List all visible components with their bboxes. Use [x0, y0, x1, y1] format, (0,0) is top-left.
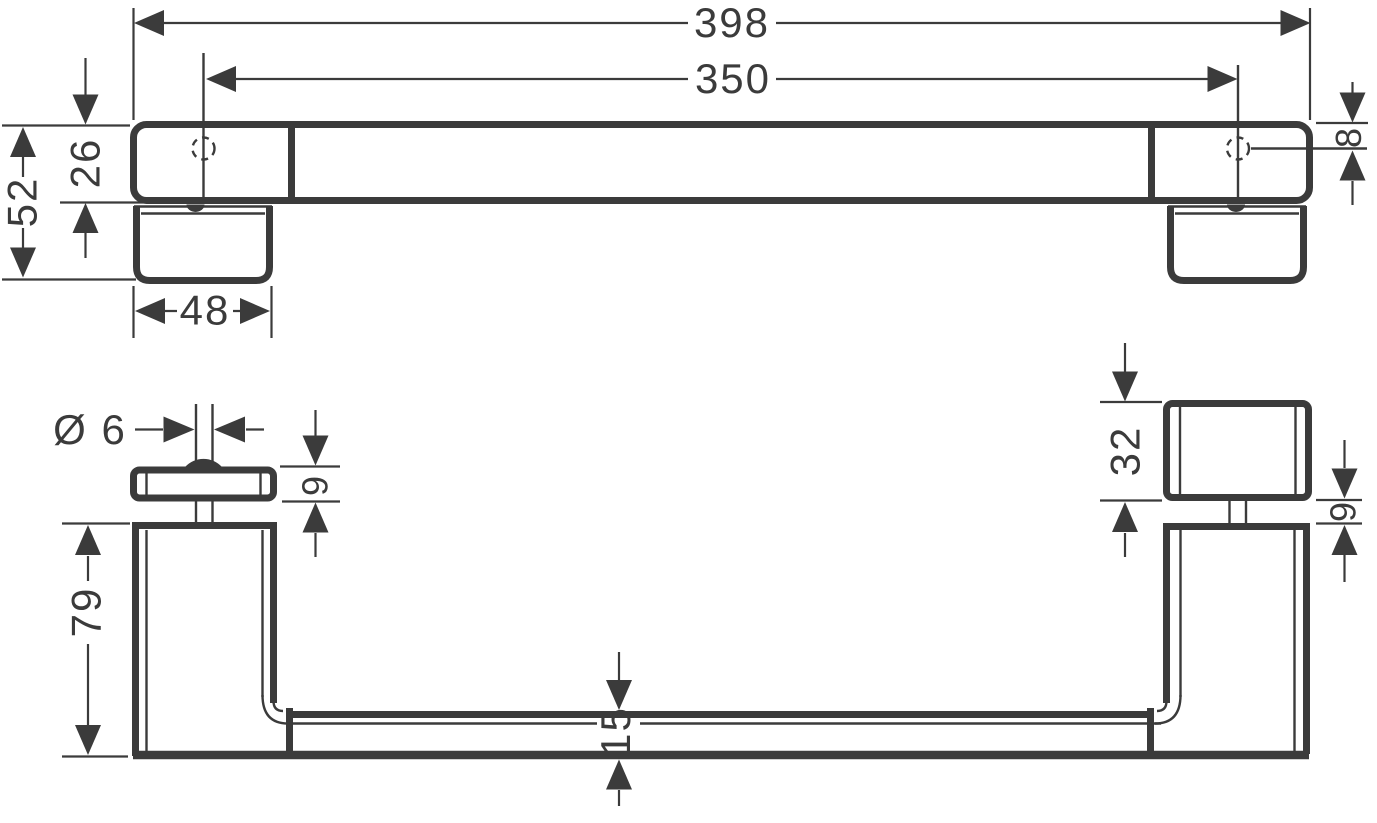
- right-mount-box: [1167, 404, 1309, 498]
- dim-d6-right-arrow: [214, 417, 245, 443]
- left-setscrew-notch: [187, 205, 205, 213]
- dim-8-bottom-arrow: [1340, 151, 1366, 181]
- front-view-dimensions: 398 350 52 26 48 8: [0, 0, 1369, 338]
- left-door-plate: [134, 470, 274, 498]
- dim-398-left-arrow: [134, 10, 164, 36]
- dim-48-left-arrow: [135, 298, 165, 324]
- dim-hole-offset-label: 8: [1328, 126, 1369, 148]
- dim-8-top-arrow: [1340, 93, 1366, 123]
- left-pin-upper: [196, 404, 213, 466]
- right-setscrew-notch: [1227, 205, 1245, 213]
- left-pin-lower: [196, 501, 213, 523]
- left-post-inner-lines: [147, 530, 263, 752]
- dim-52-top-arrow: [10, 127, 36, 157]
- right-box-bevels: [1180, 407, 1296, 494]
- dim-pin-gap-label: 9: [1323, 500, 1364, 522]
- dim-79-bottom-arrow: [75, 725, 101, 755]
- dim-overall-length-label: 398: [694, 0, 770, 46]
- dim-15-bottom-arrow: [606, 760, 632, 790]
- dim-9r-bottom-arrow: [1332, 525, 1358, 555]
- dim-15-top-arrow: [606, 680, 632, 710]
- technical-drawing: 398 350 52 26 48 8: [0, 0, 1377, 818]
- dim-mount-width-label: 48: [180, 287, 231, 334]
- dim-32-top-arrow: [1112, 372, 1138, 402]
- dim-32-bottom-arrow: [1112, 502, 1138, 532]
- dim-9r-top-arrow: [1332, 469, 1358, 499]
- dim-52-bottom-arrow: [10, 248, 36, 278]
- dim-post-height-label: 79: [63, 587, 110, 638]
- dim-9l-top-arrow: [303, 436, 329, 466]
- left-foot: [137, 206, 270, 281]
- dim-box-height-label: 32: [1102, 426, 1149, 477]
- dim-d6-left-arrow: [164, 417, 195, 443]
- dim-398-right-arrow: [1281, 10, 1311, 36]
- left-pin-dome: [185, 459, 222, 467]
- right-foot: [1171, 206, 1304, 281]
- dim-26-top-arrow: [73, 95, 99, 125]
- dim-plate-thickness-label: 9: [295, 474, 336, 496]
- drawing-canvas: 398 350 52 26 48 8: [0, 0, 1377, 818]
- dim-9l-bottom-arrow: [303, 503, 329, 533]
- dim-48-right-arrow: [240, 298, 270, 324]
- dim-handle-depth-label: 15: [592, 706, 639, 757]
- dim-350-left-arrow: [206, 66, 236, 92]
- dim-bar-height-label: 26: [62, 138, 109, 189]
- right-post-inner-lines: [1181, 530, 1295, 752]
- right-pin: [1230, 501, 1247, 524]
- dim-26-bottom-arrow: [73, 203, 99, 233]
- handle-bar-front: [134, 125, 1310, 201]
- dim-hole-spacing-label: 350: [695, 55, 771, 102]
- dim-pin-diameter-label: Ø 6: [53, 406, 127, 453]
- left-plate-bevels: [147, 473, 261, 495]
- dim-350-right-arrow: [1208, 66, 1238, 92]
- dim-79-top-arrow: [75, 525, 101, 555]
- dim-total-height-label: 52: [0, 177, 46, 228]
